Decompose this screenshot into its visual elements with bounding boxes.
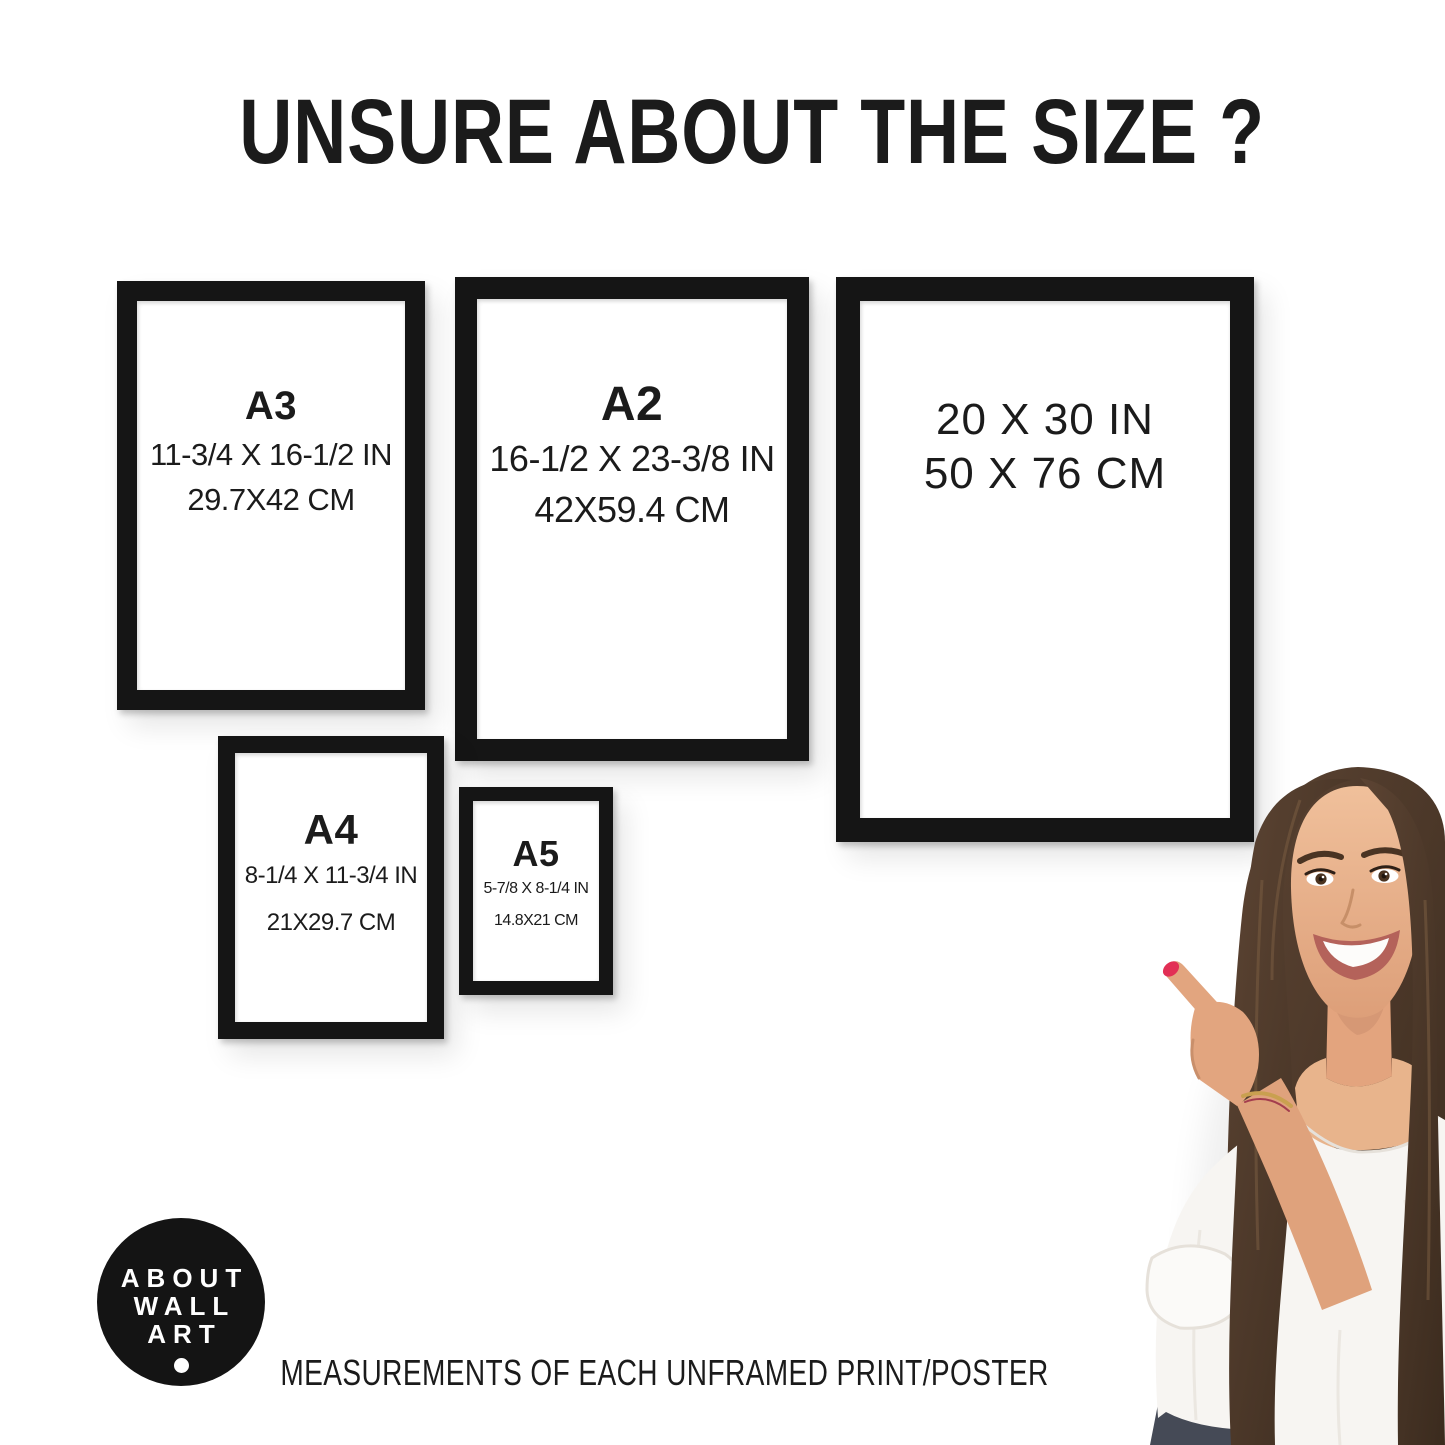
frame-a5-text: A5 5-7/8 X 8-1/4 IN 14.8X21 CM: [459, 833, 613, 932]
blouse: [1156, 1112, 1445, 1445]
frame-a4: A4 8-1/4 X 11-3/4 IN 21X29.7 CM: [218, 736, 444, 1039]
eyes: [1306, 867, 1399, 886]
frame-a2-cm: 42X59.4 CM: [455, 485, 809, 535]
blouse-neckline: [1290, 1112, 1438, 1152]
frame-a4-inches: 8-1/4 X 11-3/4 IN: [218, 860, 444, 892]
frame-a3-cm: 29.7X42 CM: [117, 478, 425, 523]
footer-caption-text: MEASUREMENTS OF EACH UNFRAMED PRINT/POST…: [281, 1352, 1049, 1394]
chest: [1295, 1058, 1440, 1150]
frame-20x30-cm: 50 X 76 CM: [836, 447, 1254, 501]
pointing-arm: [1160, 958, 1372, 1310]
nose: [1342, 890, 1360, 927]
hair-highlights: [1256, 800, 1430, 1300]
frame-a2-inches: 16-1/2 X 23-3/8 IN: [455, 434, 809, 484]
neck-shadow: [1330, 990, 1388, 1035]
logo-line-2: WALL: [127, 1292, 236, 1320]
frame-a2-label: A2: [455, 377, 809, 432]
hair-front-right: [1360, 778, 1445, 1445]
frame-a3-text: A3 11-3/4 X 16-1/2 IN 29.7X42 CM: [117, 383, 425, 523]
frame-a5-inches: 5-7/8 X 8-1/4 IN: [459, 878, 613, 900]
eyebrows: [1300, 850, 1409, 861]
frame-a3: A3 11-3/4 X 16-1/2 IN 29.7X42 CM: [117, 281, 425, 710]
page-title-text: UNSURE ABOUT THE SIZE ?: [240, 86, 1266, 178]
frame-20x30-inches: 20 X 30 IN: [836, 393, 1254, 447]
smile: [1313, 930, 1400, 980]
index-finger: [1164, 961, 1226, 1024]
frame-a2-text: A2 16-1/2 X 23-3/8 IN 42X59.4 CM: [455, 377, 809, 535]
frame-a2: A2 16-1/2 X 23-3/8 IN 42X59.4 CM: [455, 277, 809, 761]
frame-a4-label: A4: [218, 806, 444, 854]
frame-20x30-mat: [860, 301, 1230, 818]
frame-a4-text: A4 8-1/4 X 11-3/4 IN 21X29.7 CM: [218, 806, 444, 939]
face: [1291, 786, 1421, 1018]
logo-line-1: ABOUT: [114, 1264, 248, 1292]
bracelet-string: [1245, 1099, 1289, 1111]
size-guide-poster: UNSURE ABOUT THE SIZE ? A3 11-3/4 X 16-1…: [0, 0, 1445, 1445]
frame-a4-cm: 21X29.7 CM: [218, 907, 444, 939]
hair-front-left: [1229, 779, 1352, 1445]
forearm: [1237, 1078, 1372, 1310]
blouse-folds: [1194, 1200, 1414, 1445]
page-title: UNSURE ABOUT THE SIZE ?: [30, 86, 1445, 178]
frame-20x30: 20 X 30 IN 50 X 76 CM: [836, 277, 1254, 842]
logo-line-3: ART: [140, 1320, 221, 1348]
footer-caption: MEASUREMENTS OF EACH UNFRAMED PRINT/POST…: [0, 1352, 1330, 1394]
hair-back: [1226, 767, 1445, 1445]
frame-a3-label: A3: [117, 383, 425, 429]
frame-a3-inches: 11-3/4 X 16-1/2 IN: [117, 433, 425, 478]
frame-20x30-text: 20 X 30 IN 50 X 76 CM: [836, 393, 1254, 500]
frame-a5-label: A5: [459, 833, 613, 874]
pointing-hand: [1191, 1002, 1259, 1106]
knuckle-line: [1192, 1040, 1199, 1078]
jeans: [1150, 1404, 1275, 1445]
fingernail: [1160, 958, 1182, 980]
bracelet: [1243, 1093, 1291, 1106]
neck: [1326, 988, 1392, 1087]
sleeve-cuff: [1147, 1246, 1243, 1328]
frame-a5-cm: 14.8X21 CM: [459, 910, 613, 932]
frame-a5: A5 5-7/8 X 8-1/4 IN 14.8X21 CM: [459, 787, 613, 995]
